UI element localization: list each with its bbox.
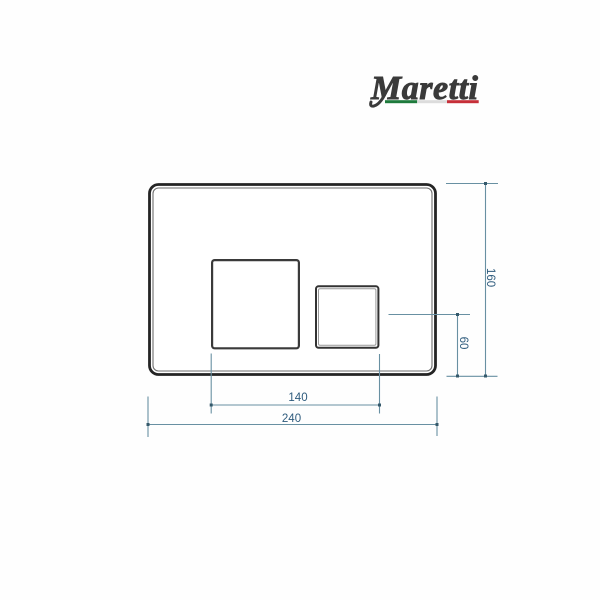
svg-text:60: 60 <box>457 337 469 350</box>
svg-text:240: 240 <box>282 413 301 425</box>
svg-text:160: 160 <box>484 268 496 287</box>
svg-text:140: 140 <box>288 392 307 404</box>
